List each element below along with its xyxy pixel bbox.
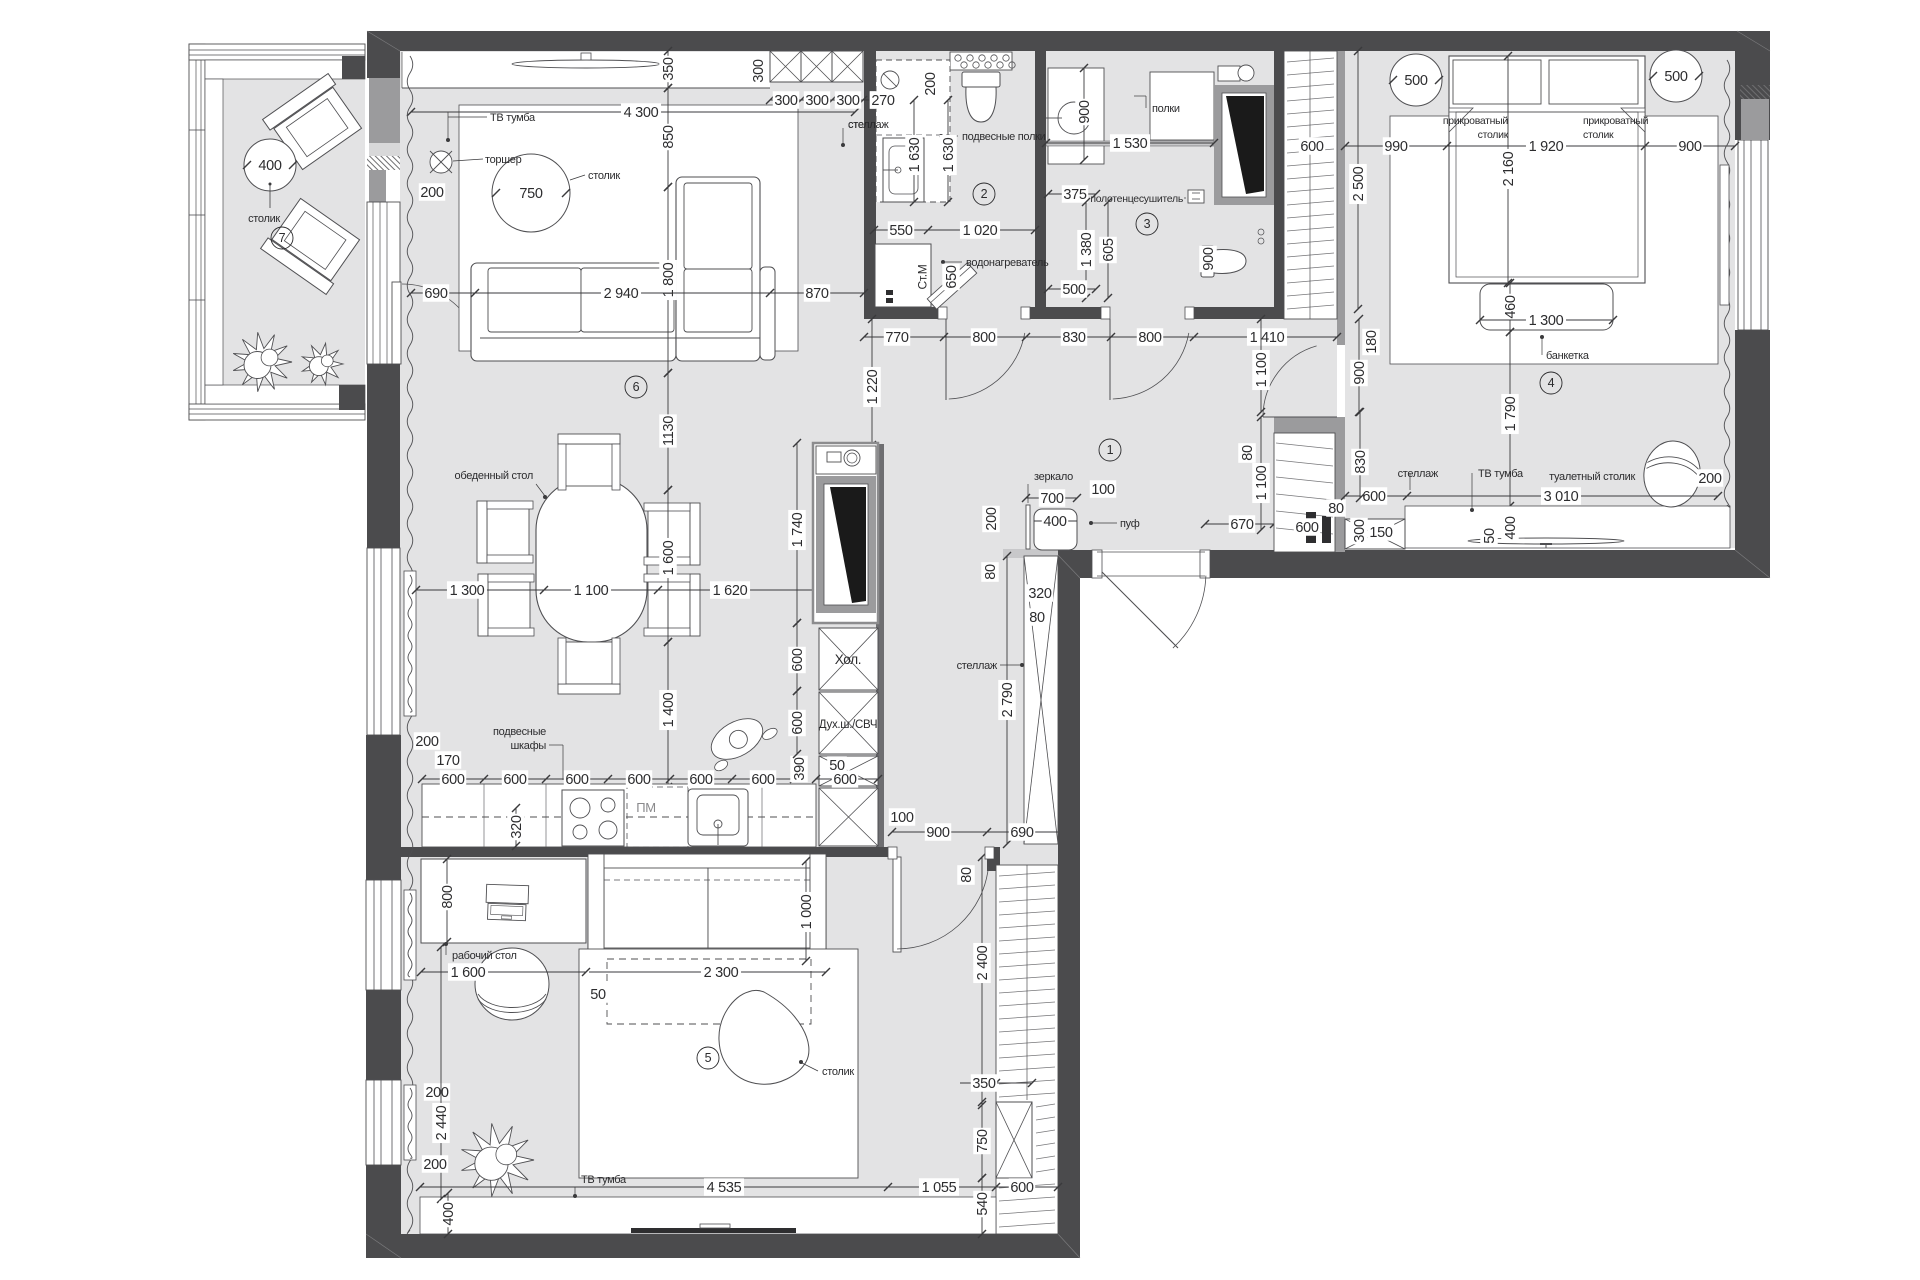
svg-text:300: 300: [836, 93, 860, 109]
svg-text:270: 270: [871, 93, 895, 109]
svg-text:830: 830: [1353, 450, 1369, 474]
svg-text:5: 5: [705, 1051, 712, 1065]
svg-text:540: 540: [975, 1192, 991, 1216]
svg-text:1 620: 1 620: [713, 583, 748, 599]
svg-text:2 300: 2 300: [704, 965, 739, 981]
svg-text:600: 600: [833, 772, 857, 788]
svg-text:600: 600: [1295, 520, 1319, 536]
svg-text:водонагреватель: водонагреватель: [966, 257, 1049, 269]
svg-text:750: 750: [519, 186, 543, 202]
svg-text:1 630: 1 630: [907, 137, 923, 172]
svg-text:Хол.: Хол.: [835, 652, 862, 667]
svg-text:1 380: 1 380: [1079, 232, 1095, 267]
svg-text:400: 400: [1503, 516, 1519, 540]
svg-text:600: 600: [565, 772, 589, 788]
svg-text:1 400: 1 400: [661, 692, 677, 727]
svg-text:350: 350: [661, 57, 677, 81]
svg-text:900: 900: [1678, 139, 1702, 155]
svg-text:3: 3: [1144, 217, 1151, 231]
svg-text:800: 800: [1138, 330, 1162, 346]
svg-text:800: 800: [972, 330, 996, 346]
svg-text:1 920: 1 920: [1529, 139, 1564, 155]
svg-text:460: 460: [1503, 295, 1519, 319]
svg-text:рабочий стол: рабочий стол: [452, 950, 517, 962]
svg-text:690: 690: [1010, 825, 1034, 841]
svg-text:прикроватный: прикроватный: [1583, 115, 1649, 127]
svg-text:стеллаж: стеллаж: [848, 119, 889, 131]
svg-text:1 300: 1 300: [1529, 313, 1564, 329]
svg-text:400: 400: [258, 158, 282, 174]
svg-text:Ст.М: Ст.М: [915, 264, 929, 289]
svg-text:столик: столик: [822, 1066, 854, 1078]
svg-text:банкетка: банкетка: [1546, 350, 1590, 362]
svg-text:650: 650: [944, 265, 960, 289]
svg-text:1 300: 1 300: [450, 583, 485, 599]
svg-text:пуф: пуф: [1120, 518, 1140, 530]
svg-text:2 160: 2 160: [1501, 151, 1517, 186]
svg-text:ТВ тумба: ТВ тумба: [1478, 468, 1524, 480]
svg-text:300: 300: [1352, 519, 1368, 543]
svg-text:870: 870: [805, 286, 829, 302]
svg-text:ТВ тумба: ТВ тумба: [581, 1174, 627, 1186]
svg-text:550: 550: [889, 223, 913, 239]
svg-text:подвесные: подвесные: [493, 726, 546, 738]
svg-text:4 535: 4 535: [707, 1180, 742, 1196]
svg-text:обеденный стол: обеденный стол: [455, 470, 533, 482]
svg-text:670: 670: [1230, 517, 1254, 533]
svg-text:300: 300: [751, 59, 767, 83]
svg-text:605: 605: [1101, 238, 1117, 262]
svg-text:2: 2: [981, 187, 988, 201]
svg-text:200: 200: [423, 1157, 447, 1173]
svg-text:600: 600: [1010, 1180, 1034, 1196]
svg-text:350: 350: [972, 1076, 996, 1092]
svg-text:3 010: 3 010: [1544, 489, 1579, 505]
svg-text:200: 200: [923, 72, 939, 96]
svg-text:2 500: 2 500: [1351, 166, 1367, 201]
svg-text:600: 600: [689, 772, 713, 788]
svg-text:1 020: 1 020: [963, 223, 998, 239]
svg-text:200: 200: [415, 734, 439, 750]
svg-text:750: 750: [975, 1129, 991, 1153]
svg-text:800: 800: [440, 885, 456, 909]
svg-text:80: 80: [1240, 445, 1256, 461]
svg-text:Дух.ш./СВЧ: Дух.ш./СВЧ: [819, 719, 877, 731]
svg-text:полки: полки: [1152, 103, 1180, 115]
svg-text:100: 100: [1091, 482, 1115, 498]
svg-text:690: 690: [424, 286, 448, 302]
svg-text:80: 80: [959, 867, 975, 883]
svg-text:200: 200: [420, 185, 444, 201]
svg-text:торшер: торшер: [485, 154, 522, 166]
svg-text:700: 700: [1040, 491, 1064, 507]
svg-text:шкафы: шкафы: [511, 740, 547, 752]
svg-text:1 000: 1 000: [799, 894, 815, 929]
svg-text:столик: столик: [1583, 129, 1614, 141]
svg-text:1 220: 1 220: [865, 369, 881, 404]
svg-text:850: 850: [661, 125, 677, 149]
svg-text:900: 900: [926, 825, 950, 841]
svg-text:390: 390: [792, 757, 808, 781]
svg-text:300: 300: [805, 93, 829, 109]
svg-text:600: 600: [1300, 139, 1324, 155]
svg-text:500: 500: [1404, 73, 1428, 89]
svg-text:стеллаж: стеллаж: [1398, 468, 1439, 480]
svg-text:50: 50: [1482, 528, 1498, 544]
svg-text:200: 200: [984, 507, 1000, 531]
svg-text:стеллаж: стеллаж: [957, 660, 998, 672]
svg-text:1130: 1130: [661, 416, 677, 446]
svg-text:столик: столик: [1478, 129, 1509, 141]
svg-text:320: 320: [509, 815, 525, 839]
svg-text:туалетный столик: туалетный столик: [1549, 471, 1635, 483]
svg-text:1 100: 1 100: [1254, 352, 1270, 387]
svg-text:1 530: 1 530: [1113, 136, 1148, 152]
svg-text:830: 830: [1062, 330, 1086, 346]
svg-text:4: 4: [1548, 376, 1555, 390]
svg-text:6: 6: [633, 380, 640, 394]
svg-text:ТВ тумба: ТВ тумба: [490, 112, 536, 124]
svg-text:7: 7: [279, 231, 286, 245]
svg-text:50: 50: [829, 758, 845, 774]
svg-text:900: 900: [1077, 100, 1093, 124]
svg-text:1 410: 1 410: [1250, 330, 1285, 346]
svg-text:подвесные полки: подвесные полки: [962, 131, 1046, 143]
svg-text:900: 900: [1201, 247, 1217, 271]
svg-text:770: 770: [885, 330, 909, 346]
svg-text:600: 600: [1362, 489, 1386, 505]
svg-text:300: 300: [774, 93, 798, 109]
svg-text:600: 600: [790, 711, 806, 735]
svg-text:1 600: 1 600: [451, 965, 486, 981]
svg-text:200: 200: [425, 1085, 449, 1101]
svg-text:прикроватный: прикроватный: [1443, 115, 1509, 127]
svg-text:2 440: 2 440: [434, 1105, 450, 1140]
svg-text:1 740: 1 740: [790, 512, 806, 547]
svg-text:80: 80: [1029, 610, 1045, 626]
svg-text:600: 600: [751, 772, 775, 788]
svg-text:1 600: 1 600: [661, 540, 677, 575]
svg-text:900: 900: [1352, 361, 1368, 385]
svg-text:500: 500: [1664, 69, 1688, 85]
svg-text:600: 600: [627, 772, 651, 788]
svg-text:4 300: 4 300: [624, 105, 659, 121]
svg-text:80: 80: [983, 564, 999, 580]
svg-text:600: 600: [790, 648, 806, 672]
svg-text:180: 180: [1364, 330, 1380, 354]
svg-text:1 800: 1 800: [661, 262, 677, 297]
svg-text:1 100: 1 100: [574, 583, 609, 599]
svg-text:1 630: 1 630: [941, 137, 957, 172]
svg-text:50: 50: [590, 987, 606, 1003]
svg-text:400: 400: [441, 1202, 457, 1226]
svg-text:170: 170: [436, 753, 460, 769]
svg-text:80: 80: [1328, 501, 1344, 517]
svg-text:375: 375: [1063, 187, 1087, 203]
svg-text:зеркало: зеркало: [1034, 471, 1073, 483]
svg-text:полотенцесушитель: полотенцесушитель: [1090, 193, 1184, 205]
svg-text:1 055: 1 055: [922, 1180, 957, 1196]
svg-text:2 940: 2 940: [604, 286, 639, 302]
svg-text:400: 400: [1043, 514, 1067, 530]
svg-text:600: 600: [441, 772, 465, 788]
svg-text:2 400: 2 400: [975, 945, 991, 980]
svg-text:100: 100: [890, 810, 914, 826]
svg-text:600: 600: [503, 772, 527, 788]
svg-text:320: 320: [1028, 586, 1052, 602]
svg-text:1: 1: [1107, 443, 1114, 457]
svg-text:500: 500: [1062, 282, 1086, 298]
svg-text:столик: столик: [588, 170, 620, 182]
svg-text:990: 990: [1384, 139, 1408, 155]
svg-text:150: 150: [1369, 525, 1393, 541]
svg-text:2 790: 2 790: [1000, 682, 1016, 717]
svg-text:ПМ: ПМ: [636, 800, 656, 815]
svg-text:1 100: 1 100: [1254, 465, 1270, 500]
svg-text:столик: столик: [248, 213, 280, 225]
svg-text:1 790: 1 790: [1503, 396, 1519, 431]
svg-text:200: 200: [1698, 471, 1722, 487]
